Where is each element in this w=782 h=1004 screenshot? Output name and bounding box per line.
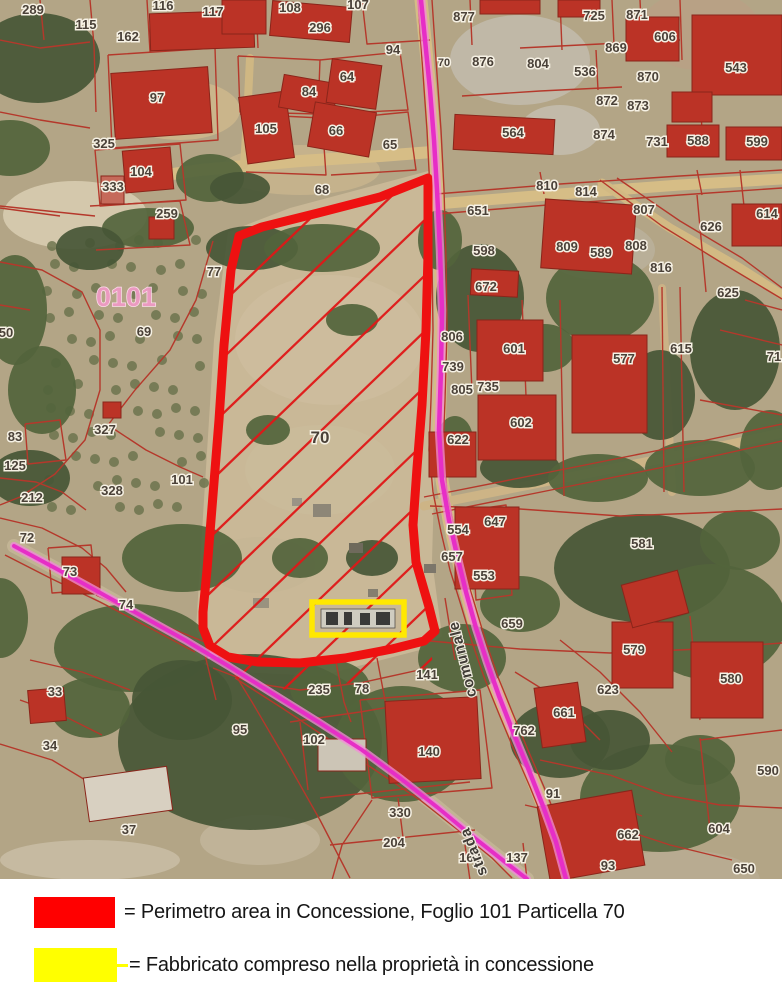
legend-label-building: = Fabbricato compreso nella proprietà in… xyxy=(129,954,594,977)
field-mark xyxy=(313,504,331,517)
olive-tree xyxy=(68,433,78,443)
olive-tree xyxy=(152,409,162,419)
olive-tree xyxy=(89,355,99,365)
concession-building-detail xyxy=(360,613,370,625)
olive-tree xyxy=(133,406,143,416)
parcel-label: 874 xyxy=(593,127,615,142)
parcel-label: 577 xyxy=(613,351,635,366)
parcel-label: 212 xyxy=(21,490,43,505)
parcel-label: 622 xyxy=(447,432,469,447)
parcel-label: 117 xyxy=(203,4,224,19)
parcel-label: 877 xyxy=(453,9,475,24)
parcel-label: 872 xyxy=(596,93,618,108)
parcel-label: 870 xyxy=(637,69,659,84)
olive-tree xyxy=(192,334,202,344)
field-mark xyxy=(349,543,363,553)
legend-swatch-red xyxy=(34,897,115,928)
olive-tree xyxy=(171,403,181,413)
parcel-label: 289 xyxy=(22,2,44,17)
parcel-label: 77 xyxy=(207,264,221,279)
olive-tree xyxy=(199,478,209,488)
olive-tree xyxy=(130,379,140,389)
legend-item-perimeter: = Perimetro area in Concessione, Foglio … xyxy=(34,897,625,928)
parcel-label: 623 xyxy=(597,682,619,697)
olive-tree xyxy=(170,313,180,323)
olive-tree xyxy=(64,307,74,317)
page: 2891151621161171081072969497846410566653… xyxy=(0,0,782,1004)
parcel-label: 590 xyxy=(757,763,779,778)
trees xyxy=(132,660,232,740)
parcel-label: 602 xyxy=(510,415,532,430)
parcel-label: 869 xyxy=(605,40,627,55)
building xyxy=(222,0,266,34)
parcel-label: 125 xyxy=(4,458,26,473)
olive-tree xyxy=(153,499,163,509)
olive-tree xyxy=(90,454,100,464)
parcel-label: 871 xyxy=(626,7,648,22)
concession-building-detail xyxy=(376,612,390,625)
field-mark xyxy=(424,564,436,573)
olive-tree xyxy=(109,457,119,467)
parcel-label: 873 xyxy=(627,98,649,113)
olive-tree xyxy=(115,502,125,512)
olive-tree xyxy=(175,259,185,269)
parcel-label: 553 xyxy=(473,568,495,583)
field-mark xyxy=(368,589,378,597)
parcel-label: 65 xyxy=(383,137,397,152)
parcel-label: 599 xyxy=(746,134,768,149)
olive-tree xyxy=(195,361,205,371)
parcel-label: 606 xyxy=(654,29,676,44)
building xyxy=(541,199,637,274)
trees xyxy=(700,510,780,570)
parcel-label: 814 xyxy=(575,184,597,199)
olive-tree xyxy=(131,478,141,488)
building xyxy=(692,15,782,95)
building xyxy=(572,335,647,433)
parcel-label: 70 xyxy=(438,57,450,69)
parcel-label: 657 xyxy=(441,549,463,564)
olive-tree xyxy=(178,286,188,296)
olive-tree xyxy=(111,385,121,395)
trees xyxy=(56,226,124,270)
parcel-label: 93 xyxy=(601,858,615,873)
concession-building-detail xyxy=(326,612,338,625)
building xyxy=(326,59,382,110)
olive-tree xyxy=(150,481,160,491)
olive-tree xyxy=(193,433,203,443)
olive-tree xyxy=(155,427,165,437)
parcel-label: 330 xyxy=(389,805,411,820)
legend-yellow-connector xyxy=(117,964,128,967)
legend-label-perimeter: = Perimetro area in Concessione, Foglio … xyxy=(124,901,625,924)
parcel-label: 104 xyxy=(130,164,152,179)
parcel-label: 78 xyxy=(355,681,369,696)
parcel-label: 806 xyxy=(441,329,463,344)
parcel-label: 662 xyxy=(617,827,639,842)
parcel-label: 74 xyxy=(119,597,134,612)
parcel-label: 810 xyxy=(536,178,558,193)
parcel-label: 580 xyxy=(720,671,742,686)
parcel-label: 588 xyxy=(687,133,709,148)
parcel-label: 68 xyxy=(315,182,329,197)
parcel-label: 71 xyxy=(767,349,781,364)
parcel-label: 625 xyxy=(717,285,739,300)
parcel-label: 83 xyxy=(8,429,22,444)
parcel-label: 731 xyxy=(646,134,668,149)
parcel-label: 661 xyxy=(553,705,575,720)
olive-tree xyxy=(149,382,159,392)
legend-item-building: = Fabbricato compreso nella proprietà in… xyxy=(34,948,594,982)
parcel-label: 647 xyxy=(484,514,506,529)
parcel-label: 589 xyxy=(590,245,612,260)
building xyxy=(480,0,540,14)
terrain-patch xyxy=(235,275,425,405)
parcel-label: 162 xyxy=(117,29,139,44)
parcel-label: 105 xyxy=(255,121,277,136)
parcel-label: 626 xyxy=(700,219,722,234)
parcel-label: 650 xyxy=(733,861,755,876)
olive-tree xyxy=(86,337,96,347)
parcel-label: 536 xyxy=(574,64,596,79)
parcel-label: 325 xyxy=(93,136,115,151)
parcel-label: 116 xyxy=(153,0,174,13)
parcel-label: 659 xyxy=(501,616,523,631)
trees xyxy=(122,524,242,592)
parcel-label: 107 xyxy=(347,0,369,12)
olive-tree xyxy=(172,502,182,512)
olive-tree xyxy=(108,358,118,368)
parcel-label: 725 xyxy=(583,8,605,23)
terrain-patch xyxy=(0,840,180,879)
legend-swatch-yellow xyxy=(34,948,117,982)
building xyxy=(103,402,121,418)
parcel-label: 598 xyxy=(473,243,495,258)
parcel-label: 328 xyxy=(101,483,123,498)
parcel-label: 615 xyxy=(670,341,692,356)
parcel-label: 141 xyxy=(416,667,438,682)
aerial-map-svg: 2891151621161171081072969497846410566653… xyxy=(0,0,782,879)
olive-tree xyxy=(191,235,201,245)
parcel-label: 808 xyxy=(625,238,647,253)
olive-tree xyxy=(66,505,76,515)
olive-tree xyxy=(105,331,115,341)
parcel-label: 579 xyxy=(623,642,645,657)
trees xyxy=(210,172,270,204)
olive-tree xyxy=(174,430,184,440)
concession-building-detail xyxy=(344,612,352,625)
olive-tree xyxy=(134,505,144,515)
olive-tree xyxy=(127,361,137,371)
parcel-label: 259 xyxy=(156,206,178,221)
parcel-label: 739 xyxy=(442,359,464,374)
parcel-label: 554 xyxy=(447,522,469,537)
trees xyxy=(264,224,380,272)
olive-tree xyxy=(67,334,77,344)
parcel-label: 327 xyxy=(94,422,116,437)
parcel-label: 84 xyxy=(302,84,317,99)
parcel-label: 137 xyxy=(506,850,528,865)
olive-tree xyxy=(71,451,81,461)
parcel-label: 296 xyxy=(309,20,331,35)
olive-tree xyxy=(113,313,123,323)
parcel-label: 809 xyxy=(556,239,578,254)
olive-tree xyxy=(128,451,138,461)
parcel-label: 50 xyxy=(0,325,13,340)
parcel-label: 97 xyxy=(150,90,164,105)
legend: = Perimetro area in Concessione, Foglio … xyxy=(0,879,782,1004)
olive-tree xyxy=(47,502,57,512)
parcel-label: 101 xyxy=(171,472,193,487)
olive-tree xyxy=(126,262,136,272)
parcel-label: 70 xyxy=(311,428,330,447)
olive-tree xyxy=(196,451,206,461)
parcel-label: 672 xyxy=(475,279,497,294)
parcel-label: 581 xyxy=(631,536,653,551)
parcel-label: 651 xyxy=(467,203,489,218)
building xyxy=(385,697,481,784)
parcel-label: 762 xyxy=(513,723,535,738)
olive-tree xyxy=(168,385,178,395)
parcel-label: 108 xyxy=(279,0,301,15)
parcel-label: 333 xyxy=(102,179,124,194)
parcel-label: 564 xyxy=(502,125,524,140)
parcel-label: 73 xyxy=(63,564,77,579)
parcel-label: 91 xyxy=(546,786,560,801)
parcel-label: 37 xyxy=(122,822,136,837)
building xyxy=(672,92,712,122)
cadastral-map: 2891151621161171081072969497846410566653… xyxy=(0,0,782,879)
parcel-label: 94 xyxy=(386,42,401,57)
parcel-label: 33 xyxy=(48,684,62,699)
parcel-label: 34 xyxy=(43,738,58,753)
parcel-label: 102 xyxy=(303,732,325,747)
parcel-label: 735 xyxy=(477,379,499,394)
olive-tree xyxy=(156,265,166,275)
sheet-label: 0101 xyxy=(96,282,156,312)
parcel-label: 69 xyxy=(137,324,151,339)
parcel-label: 876 xyxy=(472,54,494,69)
parcel-label: 235 xyxy=(308,682,330,697)
parcel-label: 805 xyxy=(451,382,473,397)
parcel-label: 95 xyxy=(233,722,247,737)
parcel-label: 140 xyxy=(418,744,440,759)
parcel-label: 66 xyxy=(329,123,343,138)
olive-tree xyxy=(50,259,60,269)
parcel-label: 543 xyxy=(725,60,747,75)
parcel-label: 64 xyxy=(340,69,355,84)
parcel-label: 614 xyxy=(756,206,778,221)
parcel-label: 604 xyxy=(708,821,730,836)
parcel-label: 204 xyxy=(383,835,405,850)
parcel-label: 804 xyxy=(527,56,549,71)
parcel-label: 115 xyxy=(76,17,97,32)
parcel-label: 816 xyxy=(650,260,672,275)
parcel-label: 601 xyxy=(503,341,525,356)
parcel-label: 807 xyxy=(633,202,655,217)
olive-tree xyxy=(47,241,57,251)
olive-tree xyxy=(190,406,200,416)
parcel-label: 72 xyxy=(20,530,34,545)
